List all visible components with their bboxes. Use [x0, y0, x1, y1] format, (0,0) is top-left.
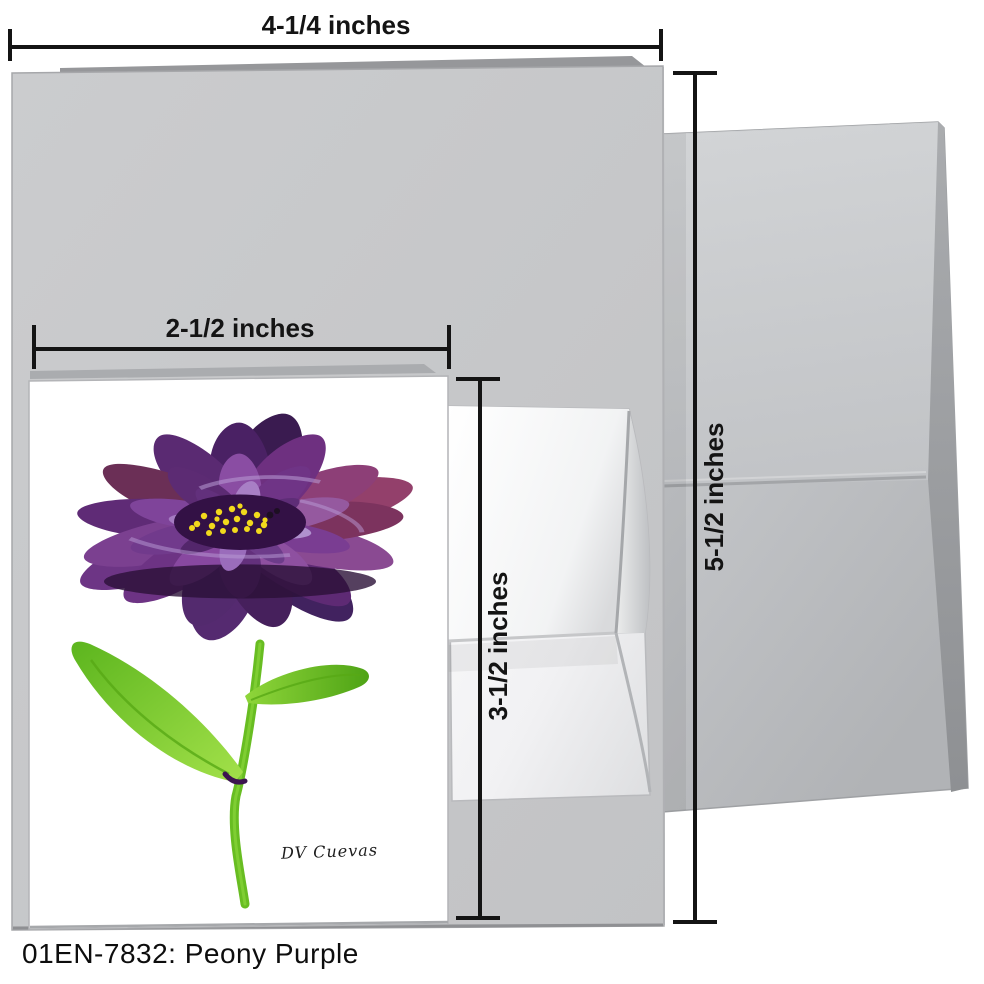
- peony-painting: [29, 376, 448, 929]
- stem-and-leaves: [71, 642, 368, 904]
- product-caption: 01EN-7832: Peony Purple: [22, 938, 359, 970]
- greeting-card-product-mockup: DV Cuevas 4-1/4 inches 2-1/2 inches 5-1/…: [0, 0, 984, 984]
- flower-artwork: DV Cuevas: [29, 376, 448, 929]
- artist-signature: DV Cuevas: [281, 840, 379, 862]
- large-envelope: [663, 122, 968, 812]
- peony-bloom: [63, 409, 425, 644]
- small-envelope: [448, 406, 650, 801]
